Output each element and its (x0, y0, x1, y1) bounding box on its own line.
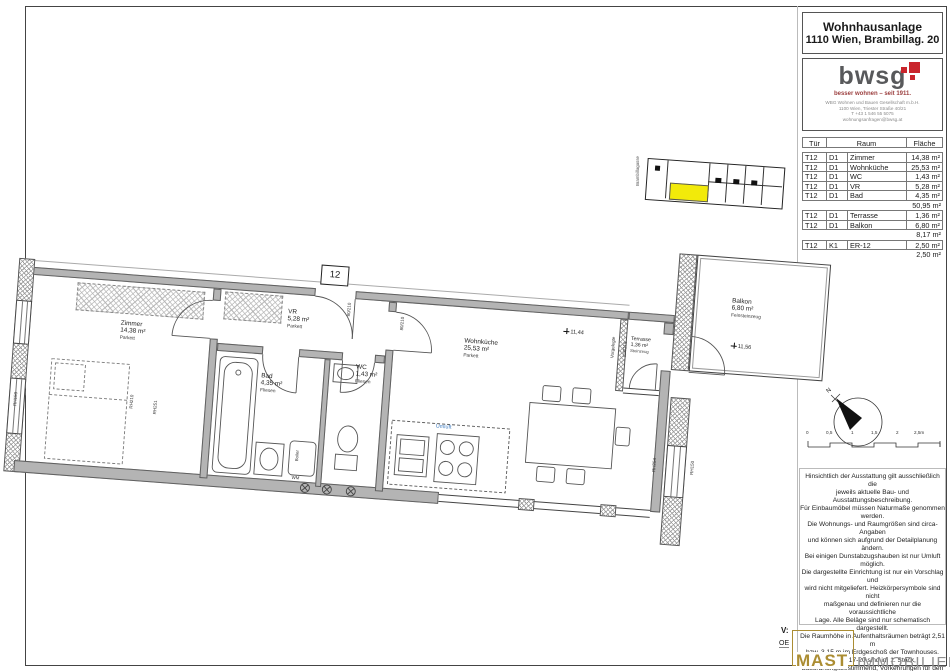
site-building (644, 154, 787, 216)
rh-label-left-window: RH150 (12, 392, 18, 406)
project-title-box: Wohnhausanlage 1110 Wien, Brambillag. 20 (802, 12, 943, 54)
level-marker-wohnkueche: 11,44 (563, 327, 584, 337)
rh-label-right-b: RH150 (689, 461, 695, 475)
table-row: T12D1Balkon6,80 m² (802, 220, 943, 231)
umluft-label: Umluft (436, 424, 452, 431)
room-label-zimmer: Zimmer 14,38 m² Parkett (119, 320, 146, 344)
level-marker-balkon: 11,56 (730, 341, 751, 351)
broker-logo-secondary: IMMOBILIEN (857, 655, 950, 670)
disclaimer-text: Hinsichtlich der Ausstattung gilt aussch… (799, 468, 946, 625)
level-marker-icon (563, 328, 569, 334)
unit-number: 12 (329, 269, 340, 281)
unit-number-box: 12 (320, 265, 349, 287)
room-label-wohnkueche: Wohnküche 25,53 m² Parkett (463, 337, 498, 362)
developer-logo-box: bwsg besser wohnen – seit 1911. WBG Wohn… (802, 58, 943, 131)
rh-label-zimmer-a: RH210 (128, 394, 134, 408)
room-table: Tür Raum Fläche T12D1Zimmer14,38 m² T12D… (802, 137, 943, 261)
project-title: Wohnhausanlage (803, 20, 942, 34)
drawing-sheet: 12 Zimmer 14,38 m² Parkett VR 5,28 m² Pa… (0, 0, 950, 671)
oe-label: OE (779, 640, 789, 648)
door-dim-vr: 80/210 (399, 317, 405, 331)
rh-label-right-a: RH254 (651, 458, 657, 472)
bwsg-logo-square-icon (909, 62, 920, 73)
floor-plan: 12 Zimmer 14,38 m² Parkett VR 5,28 m² Pa… (0, 196, 841, 573)
bwsg-logo-square-icon (901, 67, 907, 73)
room-label-terrasse: Terrasse 1,36 m² Steinzeug (630, 336, 651, 356)
street-label: Brambillagasse (635, 156, 640, 186)
bwsg-logo: bwsg (839, 62, 907, 90)
bwsg-logo-square-icon (910, 75, 915, 80)
room-label-bad: Bad 4,35 m² Fliesen (260, 372, 283, 396)
scale-bar: 0 0,5 1 1,5 2 2,5m (806, 430, 942, 452)
rh-label-zimmer-b: RH251 (152, 400, 158, 414)
room-label-vr: VR 5,28 m² Parkett (287, 308, 310, 332)
door-dim-entrance: 80/210 (346, 303, 352, 317)
site-highlight-unit (669, 183, 709, 203)
broker-logo-frame: MAST (792, 630, 854, 666)
furniture-layer (0, 196, 841, 573)
broker-logo-primary: MAST (796, 652, 848, 669)
wm-label: WM (291, 475, 299, 481)
revision-label: V: (781, 626, 789, 635)
site-plan: Brambillagasse (634, 148, 792, 218)
bwsg-address: WBG Wohnen und Bauen Gesellschaft m.b.H.… (803, 100, 942, 122)
level-marker-icon (731, 342, 737, 348)
table-subtotal-einlagerung: 2,50 m² (802, 250, 943, 261)
room-label-wc: WC 1,43 m² Fliesen (355, 363, 378, 387)
room-label-balkon: Balkon 6,80 m² Feinsteinzeug (731, 297, 762, 321)
table-row: T12D1Bad4,35 m² (802, 190, 943, 201)
boiler-label: Boiler (294, 450, 300, 462)
project-address: 1110 Wien, Brambillag. 20 (803, 34, 942, 46)
broker-logo: MAST IMMOBILIEN (792, 630, 950, 666)
scale-bar-graphic (806, 438, 942, 450)
room-table-header: Tür Raum Fläche (802, 137, 943, 148)
bwsg-tagline: besser wohnen – seit 1911. (803, 91, 942, 97)
table-row: T12K1ER-122,50 m² (802, 240, 943, 251)
